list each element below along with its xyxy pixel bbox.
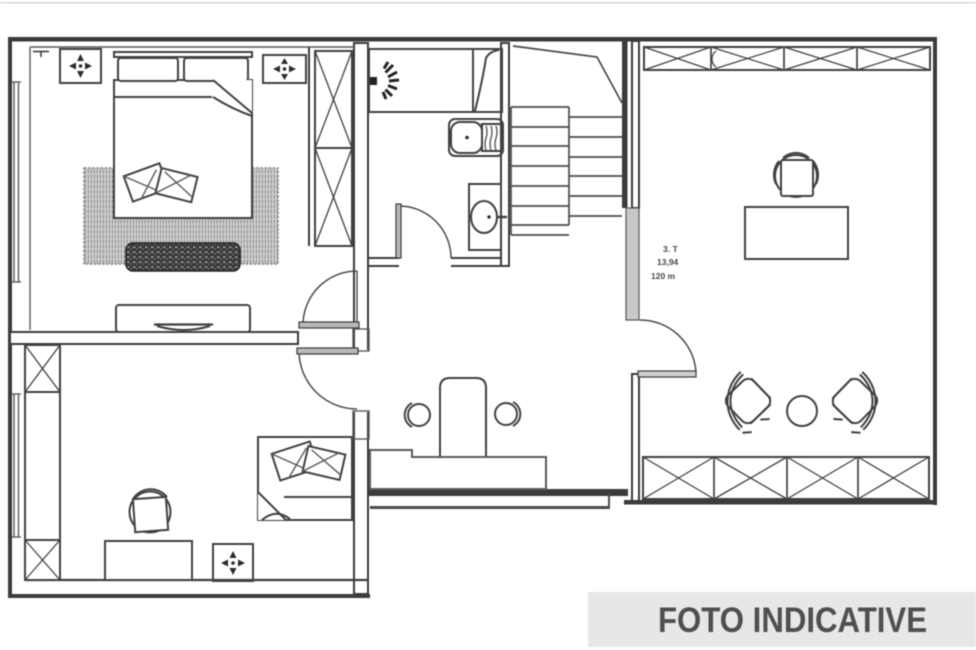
svg-text:FOTO INDICATIVE: FOTO INDICATIVE <box>658 601 927 640</box>
svg-text:13,94: 13,94 <box>657 257 679 267</box>
svg-text:120 m: 120 m <box>651 271 676 281</box>
svg-text:3. T: 3. T <box>663 244 678 254</box>
